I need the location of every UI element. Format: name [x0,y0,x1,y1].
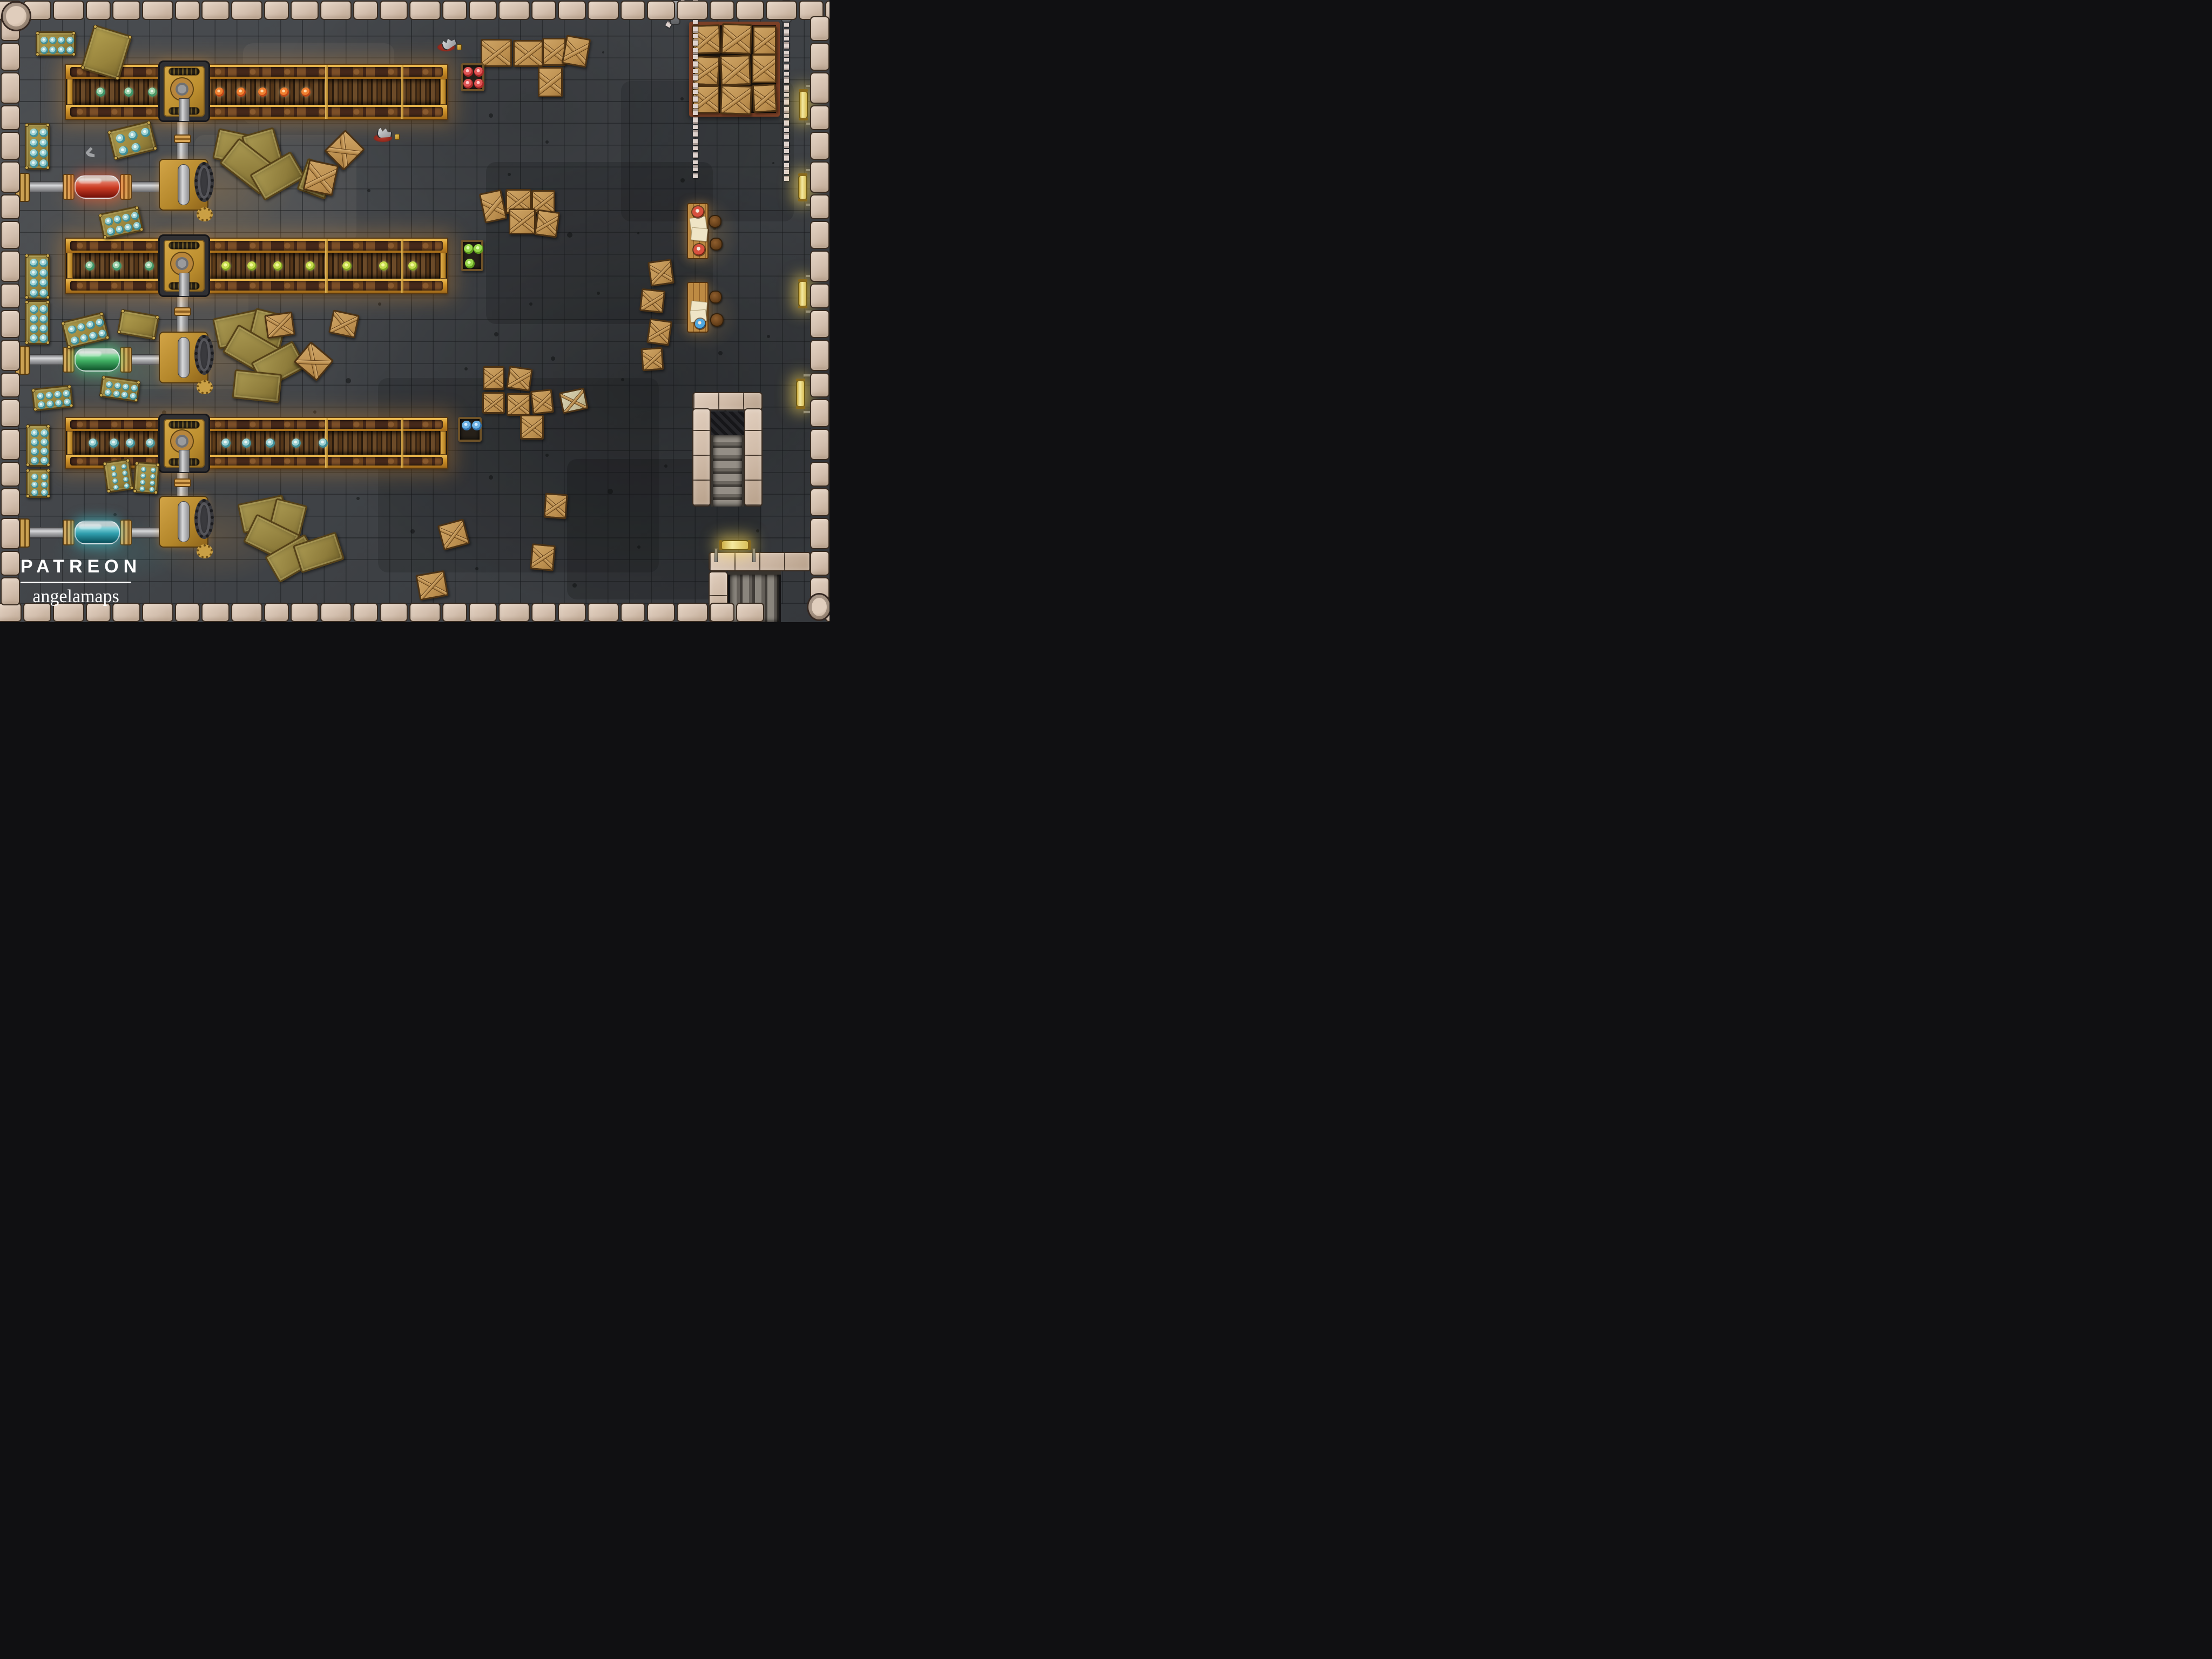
wall-stone-right [810,132,829,160]
wall-stone-top [142,1,173,20]
credit-divider [21,582,131,583]
wall-stone-left [1,221,20,249]
wall-stone-right [810,221,829,249]
wall-stone-bottom [588,603,619,622]
battle-map-factory: PATREON angelamaps [0,0,829,622]
wall-stone-left [1,462,20,487]
wall-stone-bottom [353,603,378,622]
wall-stone-top [264,1,289,20]
wall-stone-bottom [231,603,262,622]
wall-stone-top [677,1,708,20]
wall-stone-bottom [264,603,289,622]
wall-stone-bottom [201,603,230,622]
wall-stone-right [810,161,829,193]
wall-stone-right [810,251,829,282]
patreon-wordmark: PATREON [21,556,135,577]
wall-stone-bottom [621,603,645,622]
wall-stone-left [1,373,20,397]
wall-stone-top [710,1,734,20]
wall-stone-bottom [531,603,556,622]
wall-stone-top [353,1,378,20]
wall-stone-top [558,1,586,20]
patreon-credit-block: PATREON angelamaps [21,556,135,607]
wall-stone-bottom [710,603,734,622]
wall-stone-right [810,518,829,549]
wall-stone-top [766,1,797,20]
wall-stone-left [1,105,20,130]
wall-stone-top [498,1,530,20]
wall-stone-top [469,1,497,20]
wall-stone-bottom [558,603,586,622]
wall-stone-bottom [380,603,408,622]
wall-stone-bottom [647,603,675,622]
wall-stone-left [1,340,20,371]
wall-stone-left [1,429,20,460]
wall-stone-top [291,1,319,20]
wall-stone-left [1,251,20,282]
wall-stone-left [1,518,20,549]
wall-stone-right [810,310,829,338]
wall-stone-left [1,43,20,71]
wall-stone-top [588,1,619,20]
wall-stone-right [810,16,829,41]
wall-stone-right [810,340,829,371]
wall-stone-right [810,373,829,397]
wall-stone-left [1,72,20,104]
wall-stone-top [112,1,140,20]
wall-stone-bottom [291,603,319,622]
wall-stone-bottom [0,603,22,622]
wall-stone-top [442,1,467,20]
wall-stone-right [810,462,829,487]
wall-stone-bottom [677,603,708,622]
wall-stone-top [531,1,556,20]
wall-stone-bottom [409,603,441,622]
wall-stone-left [1,577,20,605]
wall-stone-bottom [175,603,200,622]
wall-stone-left [1,488,20,516]
wall-stone-bottom [442,603,467,622]
wall-stone-left [1,284,20,308]
wall-stone-left [1,194,20,219]
wall-stone-bottom [320,603,352,622]
wall-stone-left [1,399,20,427]
wall-stone-top [175,1,200,20]
wall-stone-right [810,551,829,576]
wall-stone-left [1,161,20,193]
wall-stone-left [1,310,20,338]
wall-stone-top [86,1,111,20]
wall-stone-left [1,132,20,160]
wall-stone-top [736,1,764,20]
wall-stone-bottom [469,603,497,622]
wall-stone-top [409,1,441,20]
wall-stone-right [810,105,829,130]
wall-stone-right [810,194,829,219]
wall-stone-right [810,284,829,308]
corner-stone-bottom-right [807,593,829,621]
wall-stone-top [647,1,675,20]
wall-stone-bottom [498,603,530,622]
wall-stone-bottom [142,603,173,622]
wall-stone-top [320,1,352,20]
wall-stone-left [1,551,20,576]
wall-stone-bottom [736,603,764,622]
wall-stone-right [810,399,829,427]
wall-stone-top [201,1,230,20]
wall-stone-right [810,429,829,460]
author-name: angelamaps [21,586,131,607]
wall-stone-right [810,488,829,516]
wall-stone-top [231,1,262,20]
corner-stone-top-left [1,1,31,31]
wall-stone-top [621,1,645,20]
wall-stone-top [53,1,84,20]
wall-stone-right [810,43,829,71]
outer-walls-layer [0,0,829,622]
wall-stone-top [380,1,408,20]
wall-stone-right [810,72,829,104]
